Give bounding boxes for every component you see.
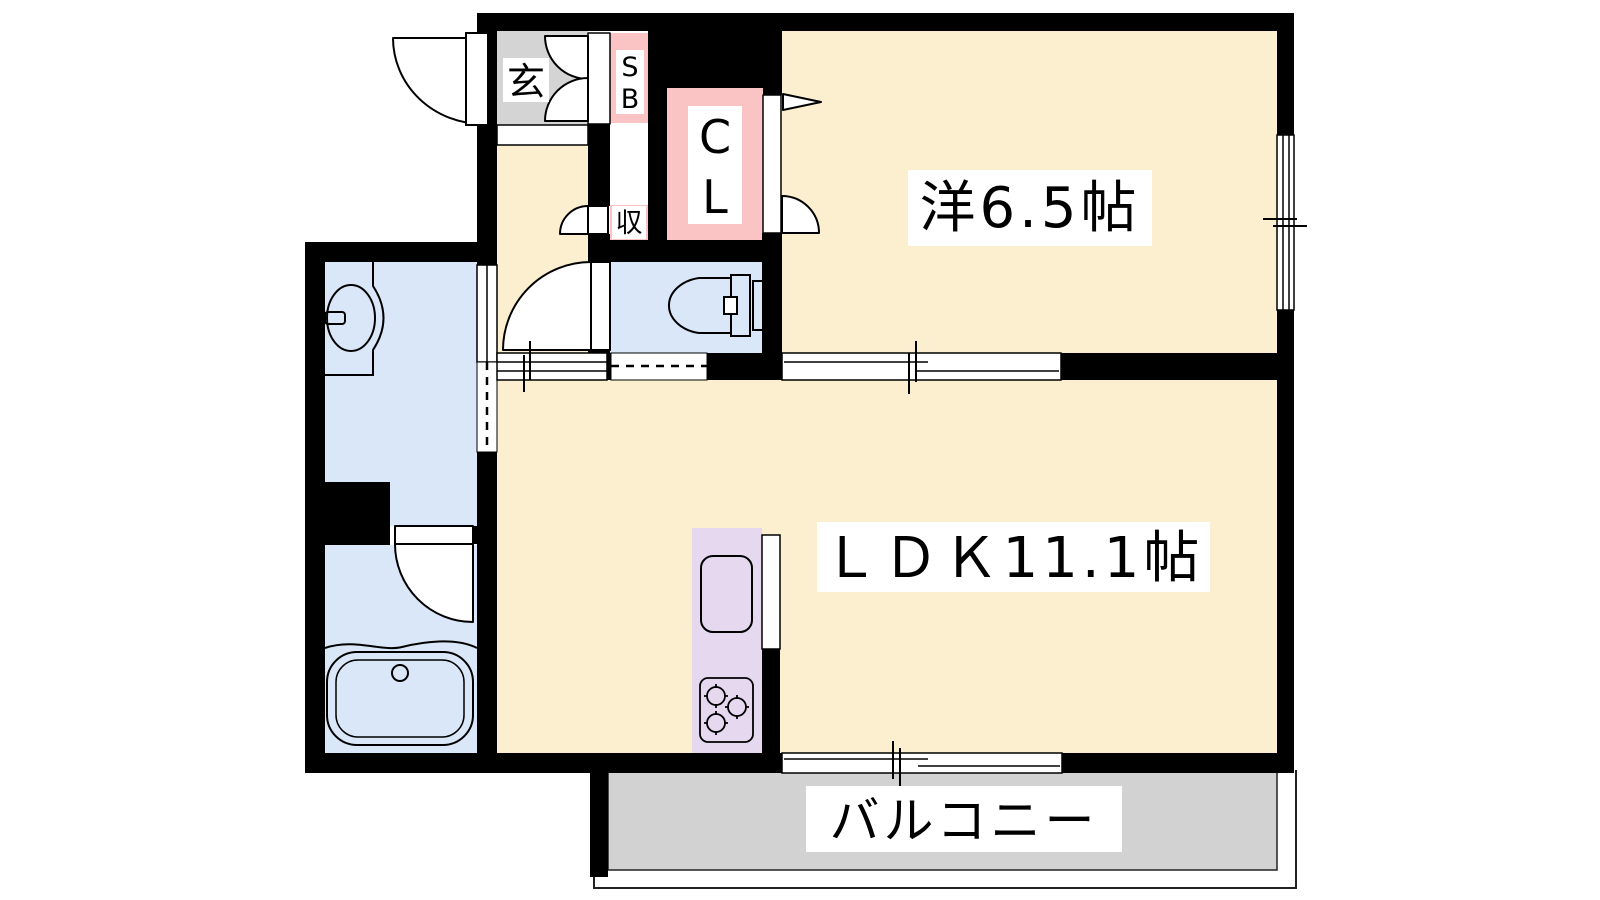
entrance-door-icon <box>393 33 488 125</box>
washroom-floor-ext <box>390 482 477 526</box>
wall-hall-left <box>477 122 497 265</box>
wall-balcony-left <box>590 768 608 877</box>
wall-right-lower <box>1277 310 1294 773</box>
wall <box>488 35 497 125</box>
western-room-label: 洋6.5帖 <box>919 176 1140 241</box>
wall-washroom-top <box>305 242 477 262</box>
shoebox-label-b: B <box>621 84 640 115</box>
wall-kitchen-stub <box>762 649 780 753</box>
wall-ldk-left <box>477 452 497 773</box>
washroom-sliding-door-icon <box>477 265 497 452</box>
wall-west-ldk <box>1061 353 1277 380</box>
floor-plan-drawing: 玄 S B C L 収 洋6.5帖 ＬＤＫ11.1帖 バルコニー <box>0 0 1600 900</box>
shoebox-label-s: S <box>621 52 638 83</box>
wall <box>707 353 782 380</box>
wall-top <box>477 13 1294 31</box>
washroom-floor <box>325 262 477 482</box>
ldk-label: ＬＤＫ11.1帖 <box>823 526 1204 591</box>
wall <box>648 13 667 262</box>
wall <box>763 88 782 95</box>
closet-label-c: C <box>699 110 731 164</box>
genkan-step <box>497 125 588 145</box>
wall-right-upper <box>1277 31 1294 135</box>
genkan-label: 玄 <box>507 60 545 104</box>
wall-toilet-right <box>762 233 782 353</box>
wall-bath-divider <box>305 482 390 545</box>
closet-label-l: L <box>702 170 728 224</box>
wall <box>588 124 610 206</box>
wall-toilet-top <box>588 240 782 262</box>
floor-plan-page: 玄 S B C L 収 洋6.5帖 ＬＤＫ11.1帖 バルコニー <box>0 0 1600 900</box>
storage-label: 収 <box>616 208 643 239</box>
wall <box>473 526 497 544</box>
kitchen-counter-edge <box>762 535 780 649</box>
wall-bottom <box>305 753 782 773</box>
balcony-label: バルコニー <box>830 792 1099 850</box>
wall-bottom-right <box>1062 753 1294 773</box>
wall-above-closet <box>667 13 782 88</box>
